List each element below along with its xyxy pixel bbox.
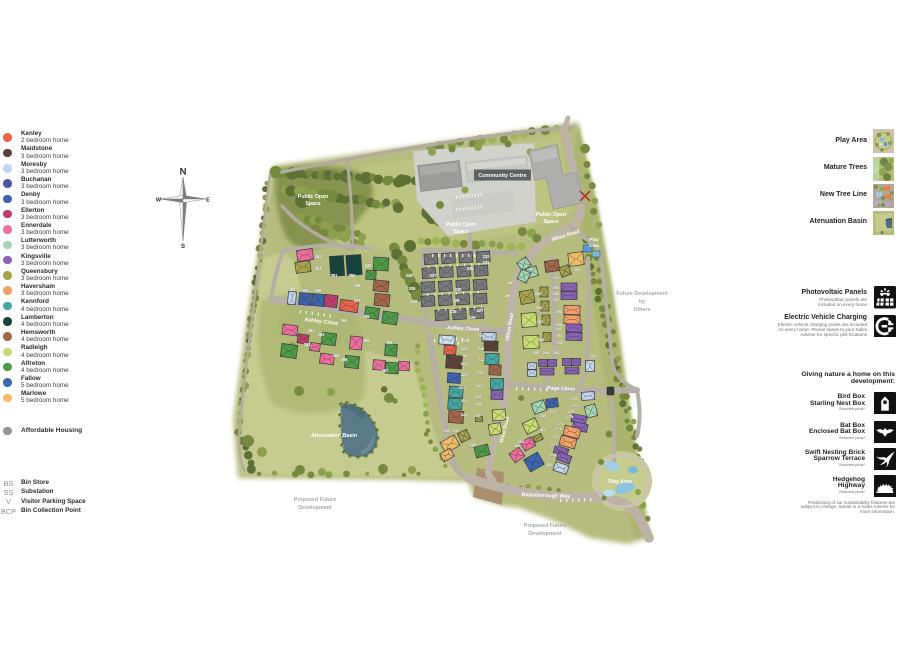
- svg-text:348: 348: [354, 283, 362, 288]
- svg-text:Play Area: Play Area: [608, 479, 632, 485]
- svg-text:272: 272: [553, 434, 560, 439]
- svg-text:315: 315: [475, 401, 482, 406]
- svg-text:319: 319: [443, 428, 450, 433]
- svg-text:226: 226: [469, 315, 477, 320]
- svg-text:331: 331: [483, 260, 491, 265]
- svg-text:368: 368: [386, 340, 394, 345]
- svg-text:355: 355: [302, 288, 310, 293]
- svg-text:Proposed Future: Proposed Future: [524, 523, 566, 529]
- svg-text:312: 312: [477, 370, 484, 375]
- svg-text:349: 349: [365, 263, 373, 268]
- svg-text:352: 352: [315, 254, 323, 259]
- svg-text:351: 351: [331, 273, 339, 278]
- svg-text:297: 297: [553, 297, 560, 302]
- svg-text:316: 316: [474, 413, 481, 418]
- svg-text:314: 314: [475, 394, 482, 399]
- svg-text:324: 324: [461, 361, 468, 366]
- svg-text:337: 337: [430, 273, 438, 278]
- svg-text:269: 269: [546, 462, 553, 467]
- svg-text:322: 322: [459, 385, 466, 390]
- svg-text:Proposed Future: Proposed Future: [294, 497, 336, 503]
- svg-text:280: 280: [540, 413, 547, 418]
- svg-text:Area: Area: [589, 243, 600, 248]
- svg-text:339: 339: [409, 286, 417, 291]
- svg-text:364: 364: [341, 318, 349, 323]
- svg-text:Public Open: Public Open: [298, 194, 328, 200]
- svg-text:361: 361: [308, 328, 316, 333]
- svg-text:291: 291: [590, 353, 597, 358]
- svg-text:309: 309: [478, 333, 485, 338]
- svg-text:270: 270: [550, 452, 557, 457]
- svg-text:294: 294: [555, 326, 562, 331]
- svg-text:364: 364: [333, 353, 341, 358]
- svg-text:310: 310: [478, 346, 485, 351]
- svg-text:Development: Development: [298, 505, 331, 511]
- svg-text:363: 363: [318, 332, 326, 337]
- svg-text:Space: Space: [305, 201, 320, 207]
- svg-text:366: 366: [363, 314, 371, 319]
- svg-text:335: 335: [467, 266, 475, 271]
- svg-text:307: 307: [537, 319, 544, 324]
- svg-text:340: 340: [406, 273, 414, 278]
- svg-text:Public Open: Public Open: [536, 212, 566, 218]
- svg-text:298: 298: [553, 291, 560, 296]
- svg-text:286: 286: [533, 350, 540, 355]
- svg-text:313: 313: [476, 383, 483, 388]
- svg-text:353: 353: [315, 266, 323, 271]
- svg-text:Play: Play: [589, 237, 599, 242]
- svg-text:320: 320: [461, 412, 468, 417]
- svg-text:366: 366: [341, 357, 349, 362]
- svg-text:271: 271: [551, 442, 558, 447]
- svg-text:318: 318: [469, 442, 476, 447]
- svg-text:278: 278: [571, 396, 578, 401]
- svg-text:275: 275: [567, 414, 574, 419]
- svg-text:Attenuation Basin: Attenuation Basin: [311, 433, 357, 439]
- svg-text:327: 327: [477, 308, 485, 313]
- svg-text:305: 305: [535, 291, 542, 296]
- svg-text:362: 362: [304, 342, 312, 347]
- svg-text:281: 281: [539, 427, 546, 432]
- svg-text:323: 323: [461, 372, 468, 377]
- svg-text:367: 367: [382, 368, 390, 373]
- svg-text:99: 99: [463, 353, 468, 358]
- svg-text:Others: Others: [633, 307, 650, 313]
- svg-text:306: 306: [536, 305, 543, 310]
- svg-text:321: 321: [461, 398, 468, 403]
- svg-text:354: 354: [289, 287, 297, 292]
- svg-text:Community Centre: Community Centre: [478, 173, 526, 179]
- svg-text:Future Development: Future Development: [616, 291, 667, 297]
- svg-text:308: 308: [538, 337, 545, 342]
- svg-text:347: 347: [354, 298, 362, 303]
- svg-text:350: 350: [349, 273, 357, 278]
- svg-text:296: 296: [556, 309, 563, 314]
- svg-text:293: 293: [556, 333, 563, 338]
- svg-text:Public Open: Public Open: [446, 222, 476, 228]
- svg-text:279: 279: [550, 409, 557, 414]
- svg-text:Page Close: Page Close: [547, 386, 575, 393]
- svg-text:338: 338: [411, 299, 419, 304]
- svg-text:317: 317: [453, 428, 460, 433]
- svg-text:365: 365: [363, 338, 371, 343]
- svg-text:300: 300: [574, 267, 581, 272]
- svg-text:325: 325: [461, 346, 468, 351]
- svg-text:292: 292: [557, 340, 564, 345]
- svg-text:356: 356: [315, 288, 323, 293]
- svg-text:284: 284: [553, 350, 560, 355]
- svg-text:332: 332: [483, 254, 491, 259]
- svg-text:Space: Space: [453, 229, 468, 235]
- svg-text:329: 329: [453, 298, 461, 303]
- svg-text:273: 273: [555, 426, 562, 431]
- svg-text:330: 330: [455, 287, 463, 292]
- svg-text:Space: Space: [543, 219, 558, 225]
- svg-text:311: 311: [478, 357, 485, 362]
- svg-text:by: by: [639, 299, 645, 305]
- svg-text:285: 285: [543, 350, 550, 355]
- svg-text:283: 283: [514, 443, 521, 448]
- svg-text:299: 299: [553, 285, 560, 290]
- svg-text:277: 277: [572, 403, 579, 408]
- svg-text:331: 331: [553, 275, 560, 280]
- svg-text:328: 328: [450, 309, 458, 314]
- svg-text:Development: Development: [528, 531, 561, 537]
